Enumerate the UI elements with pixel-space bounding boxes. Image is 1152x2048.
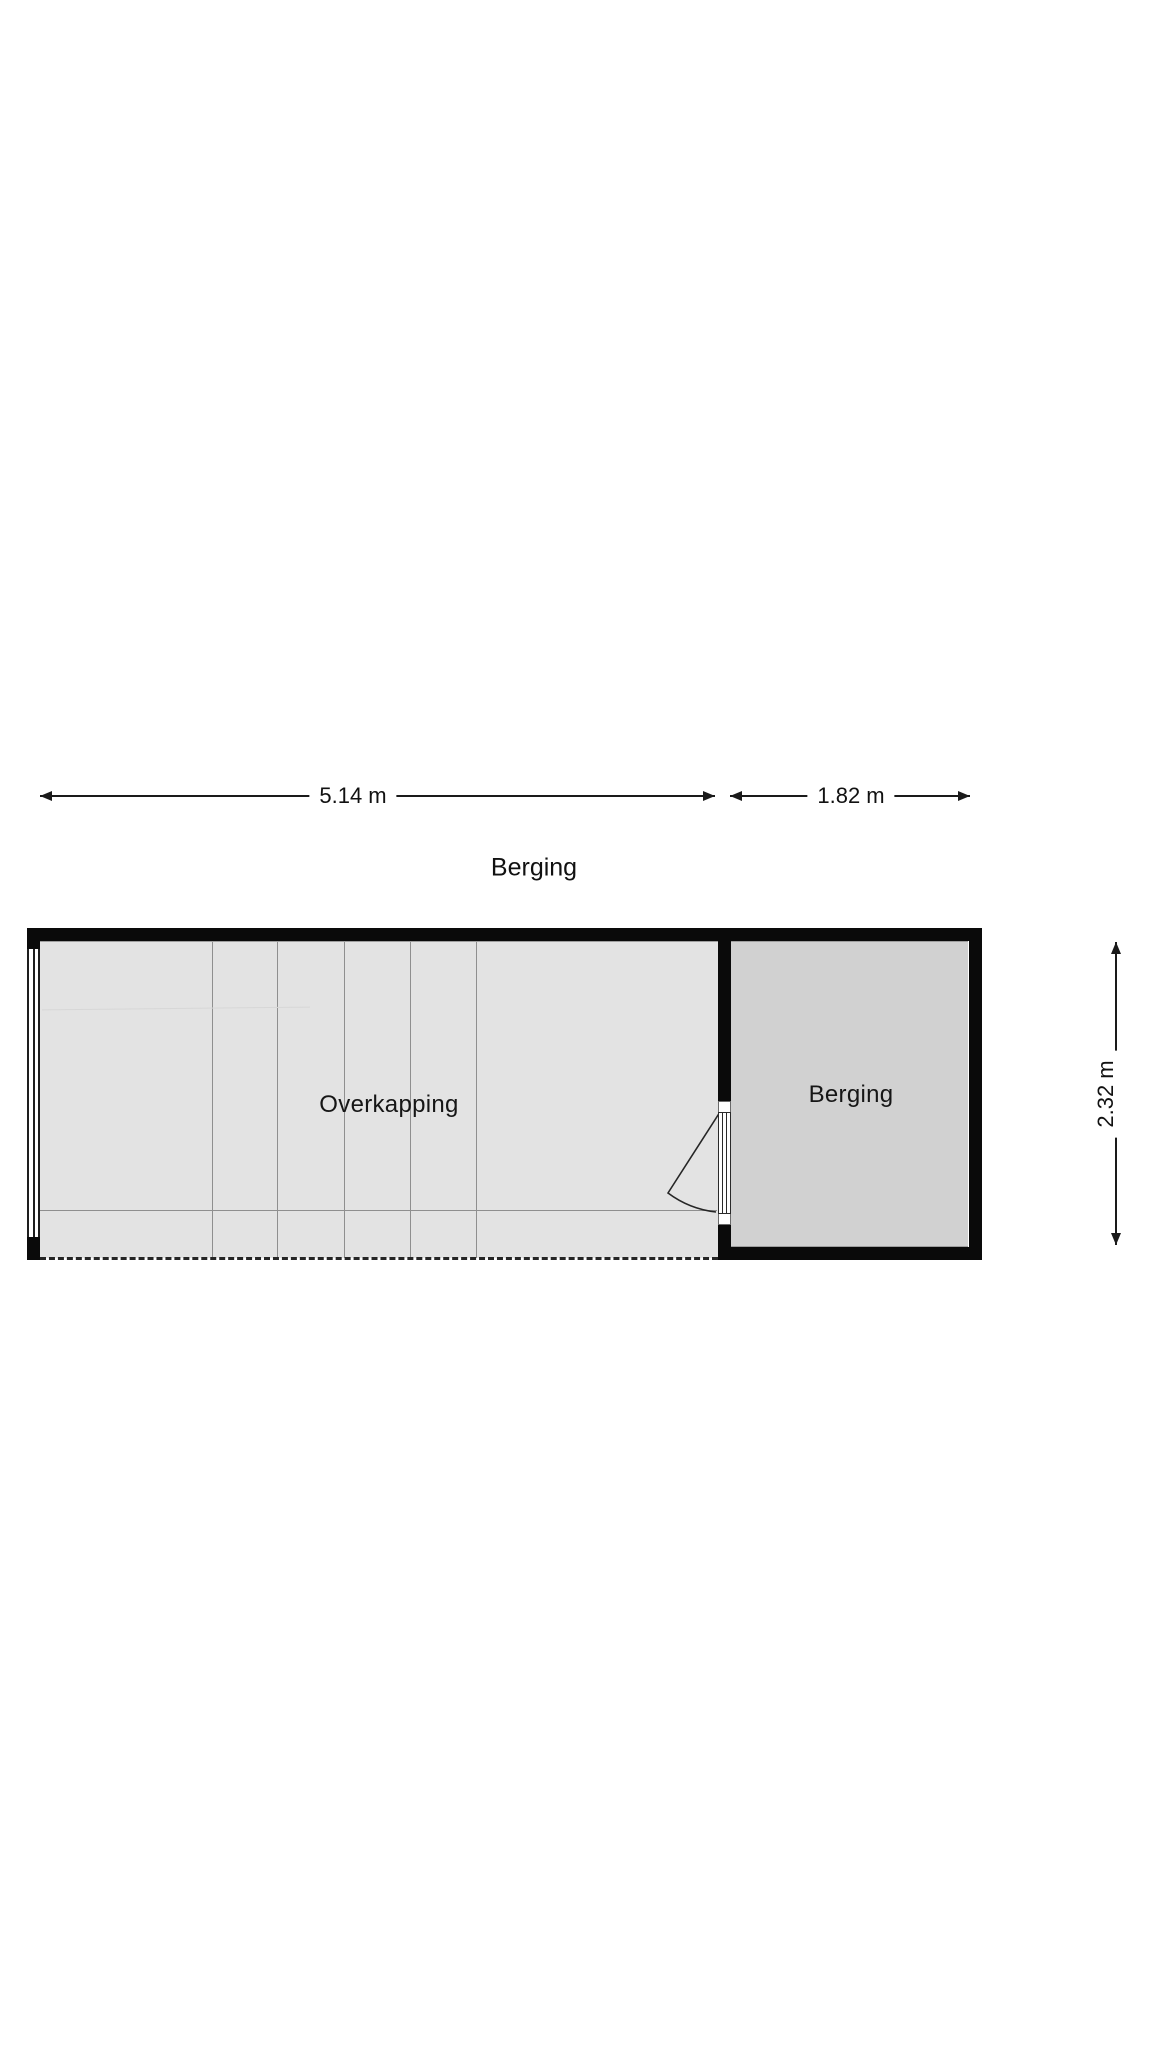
arrow-left-icon bbox=[730, 791, 742, 801]
room-label-berging: Berging bbox=[809, 1081, 894, 1109]
room-label-overkapping: Overkapping bbox=[319, 1091, 458, 1119]
wall-bottom-berging bbox=[718, 1247, 982, 1260]
plan-title: Berging bbox=[491, 854, 577, 883]
window-mullion-line bbox=[33, 949, 35, 1237]
open-edge-dashed-line bbox=[40, 1257, 718, 1260]
arrow-right-icon bbox=[958, 791, 970, 801]
arrow-right-icon bbox=[703, 791, 715, 801]
arrow-left-icon bbox=[40, 791, 52, 801]
wall-divider-upper bbox=[718, 940, 731, 1101]
window-symbol-left bbox=[27, 949, 40, 1237]
wall-top bbox=[27, 928, 982, 941]
door-leaf bbox=[718, 1112, 731, 1214]
post-top-left bbox=[27, 928, 40, 949]
roof-edge-line bbox=[40, 1210, 717, 1211]
post-bottom-left bbox=[27, 1237, 40, 1260]
door-leaf-line bbox=[726, 1113, 727, 1213]
dimension-label: 1.82 m bbox=[807, 783, 894, 809]
wall-right bbox=[969, 940, 982, 1260]
dimension-label: 2.32 m bbox=[1093, 1050, 1119, 1137]
door-jamb-bottom bbox=[718, 1213, 731, 1225]
door-leaf-line bbox=[722, 1113, 723, 1213]
floorplan-canvas: 5.14 m 1.82 m Berging Overkapping B bbox=[0, 0, 1152, 2048]
dimension-label: 5.14 m bbox=[309, 783, 396, 809]
arrow-down-icon bbox=[1111, 1233, 1121, 1245]
arrow-up-icon bbox=[1111, 942, 1121, 954]
